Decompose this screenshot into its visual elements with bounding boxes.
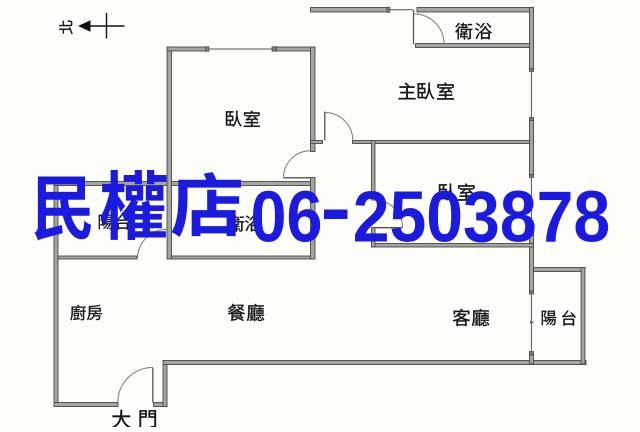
- svg-text:2503878: 2503878: [353, 176, 611, 257]
- svg-text:06: 06: [251, 176, 323, 257]
